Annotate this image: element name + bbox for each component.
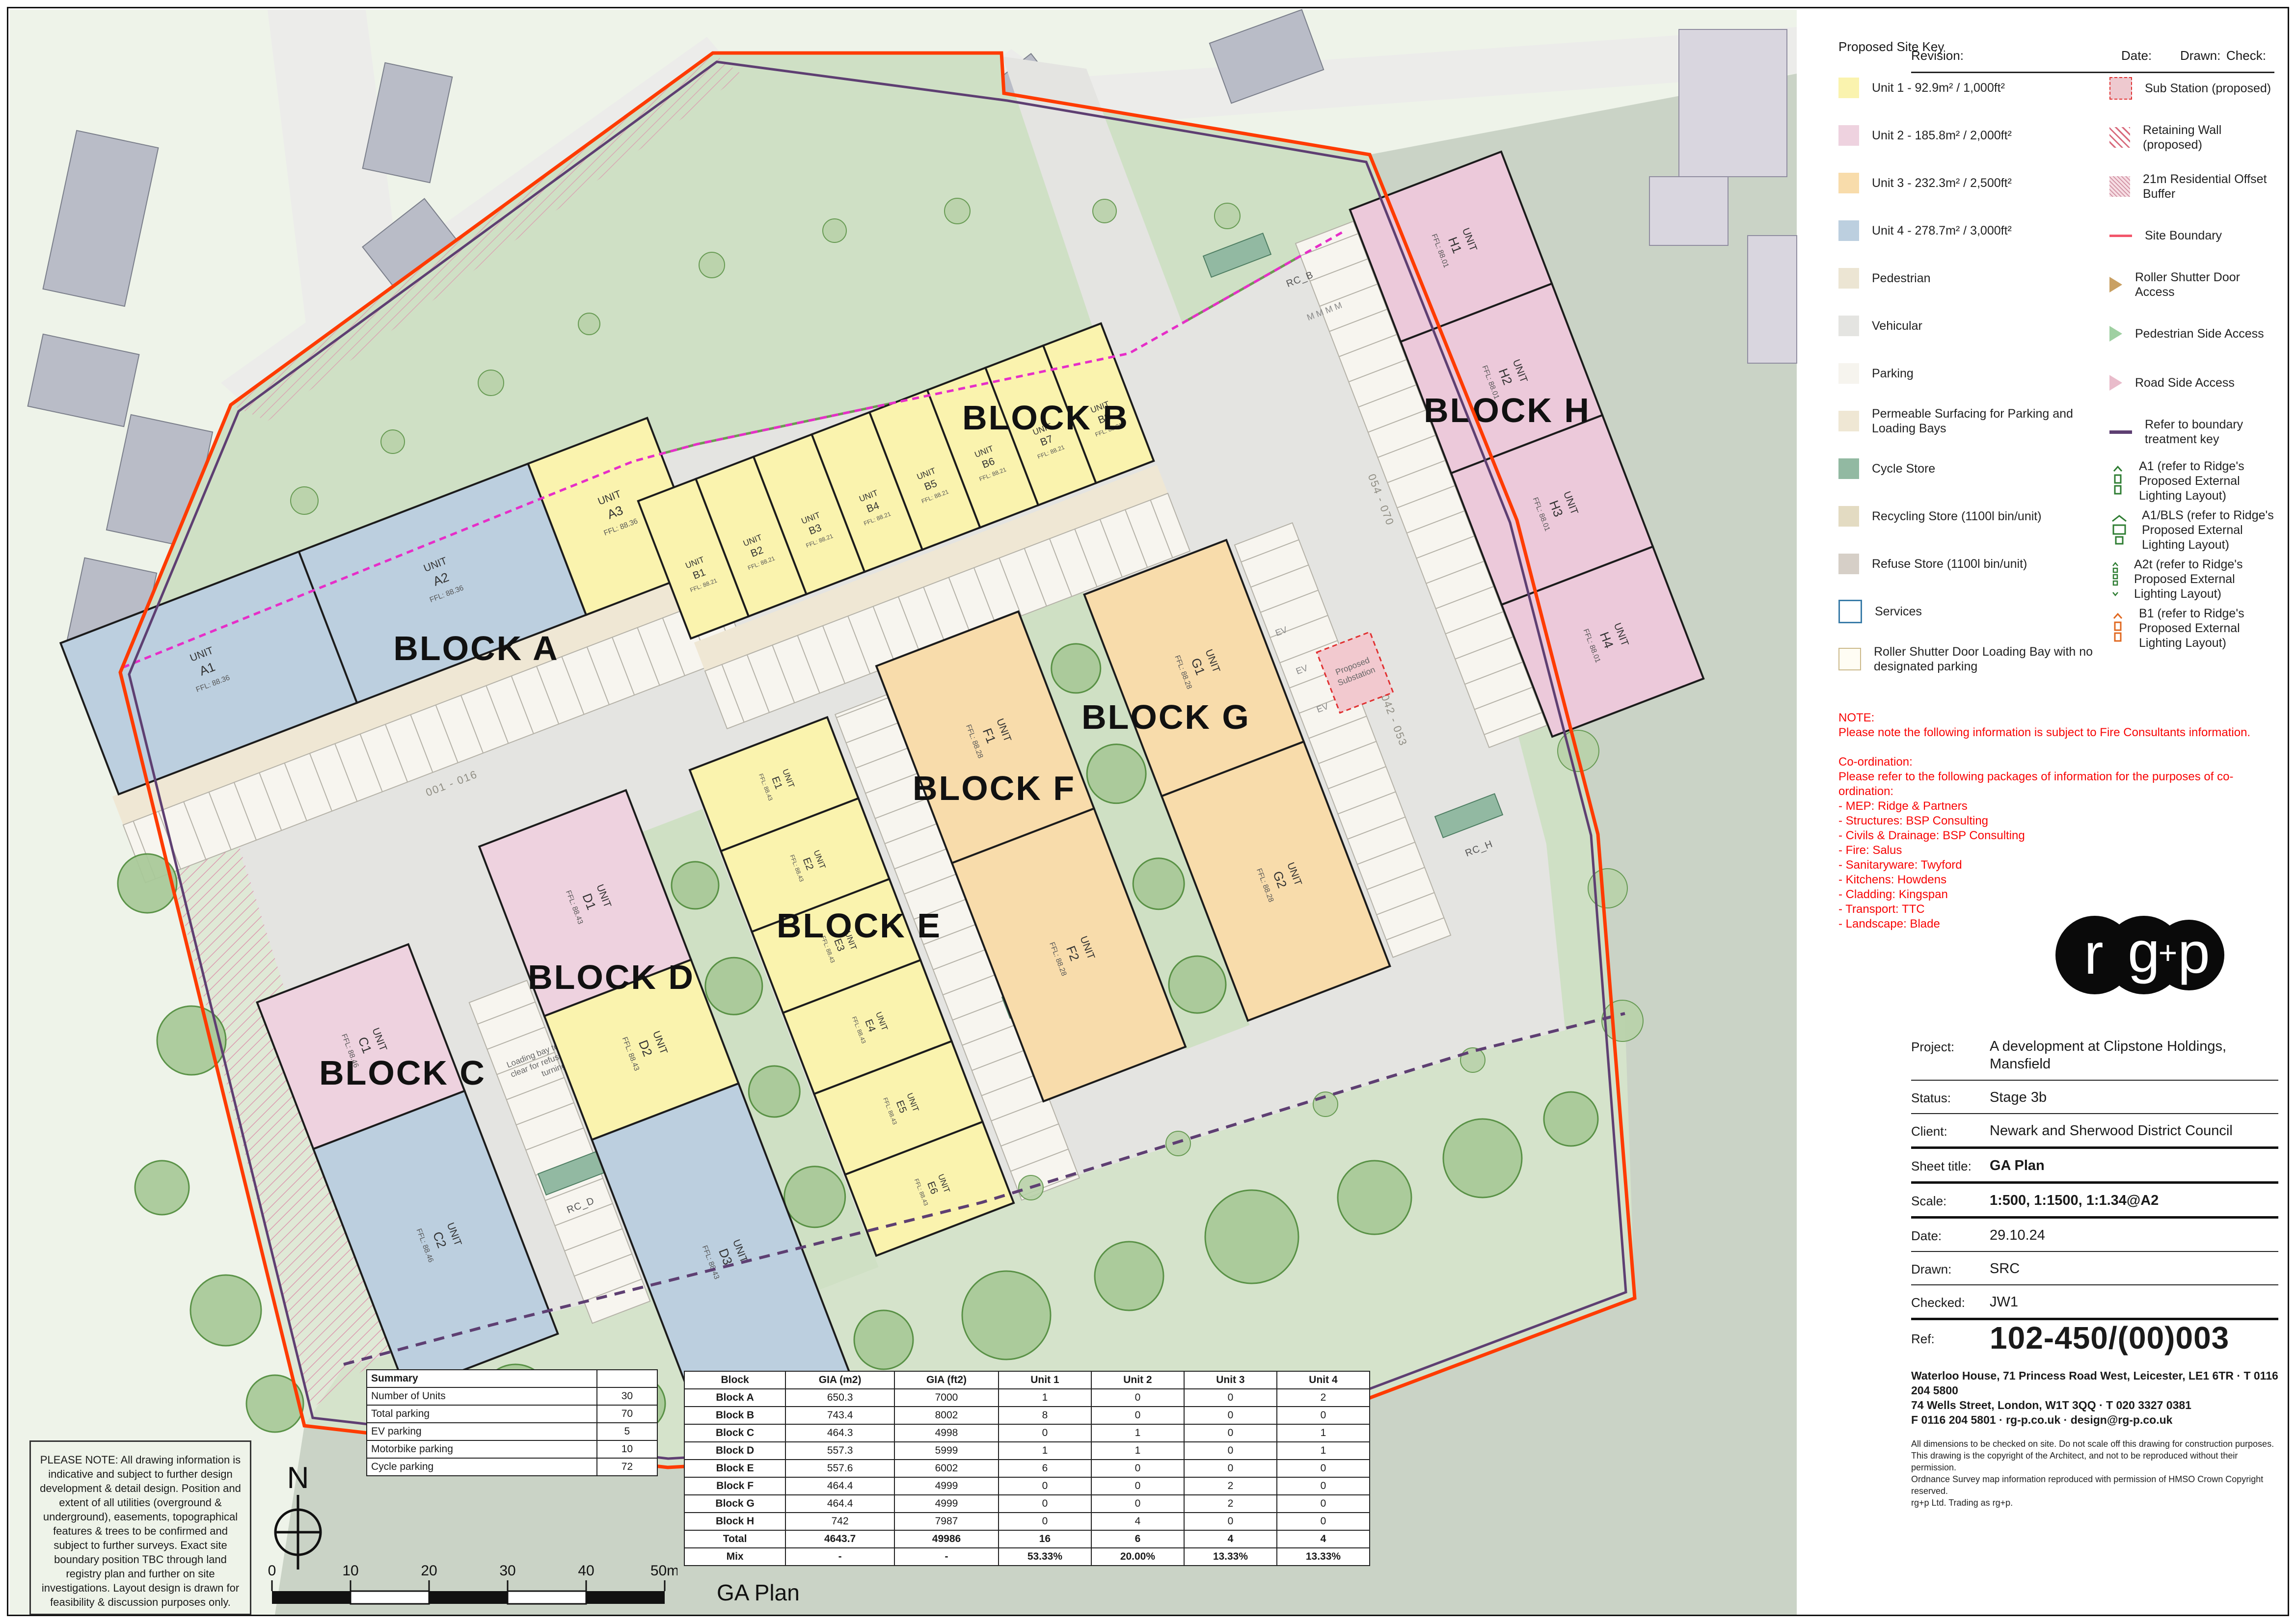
note-line: - Sanitaryware: Twyford (1838, 858, 2275, 873)
titleblock-label: Drawn: (1911, 1260, 1990, 1277)
legend-item: Cycle Store (1838, 445, 2104, 492)
legend-item-label: Cycle Store (1872, 461, 1935, 476)
legend-item-label: Retaining Wall (proposed) (2143, 123, 2280, 152)
legend-item-label: Permeable Surfacing for Parking and Load… (1872, 406, 2104, 436)
legend-item-label: Services (1875, 604, 1922, 619)
block-c-label: BLOCK C (319, 1054, 486, 1092)
legend-item-label: Unit 3 - 232.3m² / 2,500ft² (1872, 176, 2012, 190)
note-line: NOTE: (1838, 711, 2275, 725)
address-line: 74 Wells Street, London, W1T 3QQ · T 020… (1911, 1398, 2278, 1412)
block-b-label: BLOCK B (962, 399, 1129, 437)
titleblock-label: Checked: (1911, 1293, 1990, 1310)
road-access-arrow-icon (2109, 375, 2122, 391)
block-schedule-table: BlockGIA (m2)GIA (ft2)Unit 1Unit 2Unit 3… (684, 1371, 1370, 1566)
legend-item: Permeable Surfacing for Parking and Load… (1838, 397, 2104, 445)
legend-item: Unit 3 - 232.3m² / 2,500ft² (1838, 159, 2104, 207)
legend-item: A2t (refer to Ridge's Proposed External … (2109, 555, 2280, 604)
table-row: Block C464.349980101 (684, 1424, 1370, 1442)
table-row: Block A650.370001002 (684, 1389, 1370, 1407)
legend-item: Pedestrian (1838, 254, 2104, 302)
block-e-label: BLOCK E (777, 906, 942, 945)
legend-item: A1 (refer to Ridge's Proposed External L… (2109, 456, 2280, 506)
legend-swatch (1838, 458, 1859, 479)
legend-item: Roller Shutter Door Access (2109, 260, 2280, 309)
legend-item: Pedestrian Side Access (2109, 309, 2280, 358)
note-line: - Fire: Salus (1838, 843, 2275, 858)
table-row: Number of Units30 (367, 1387, 657, 1405)
titleblock-value: A development at Clipstone Holdings, Man… (1990, 1038, 2278, 1073)
please-note-box: PLEASE NOTE: All drawing information is … (29, 1440, 251, 1615)
note-line: - Civils & Drainage: BSP Consulting (1838, 828, 2275, 843)
legend-swatch (1838, 316, 1859, 336)
legend-item: Unit 1 - 92.9m² / 1,000ft² (1838, 64, 2104, 111)
titleblock-label: Client: (1911, 1122, 1990, 1139)
legend-right-column: Sub Station (proposed)Retaining Wall (pr… (2109, 64, 2280, 653)
titleblock-label: Project: (1911, 1038, 1990, 1055)
table-row: Summary (367, 1370, 657, 1387)
legend-item-label: Refer to boundary treatment key (2145, 417, 2280, 447)
legend-title: Proposed Site Key (1838, 39, 1944, 54)
rgp-logo: r g + p (2054, 912, 2226, 1000)
legend-item: 21m Residential Offset Buffer (2109, 162, 2280, 211)
legend-item: Road Side Access (2109, 358, 2280, 407)
svg-text:30: 30 (499, 1563, 515, 1579)
services-swatch (1838, 600, 1862, 623)
titleblock-value: Newark and Sherwood District Council (1990, 1122, 2233, 1140)
block-a-label: BLOCK A (393, 629, 559, 667)
legend-item: B1 (refer to Ridge's Proposed External L… (2109, 604, 2280, 653)
note-line: - Kitchens: Howdens (1838, 873, 2275, 887)
legend-item-label: B1 (refer to Ridge's Proposed External L… (2139, 606, 2280, 650)
titleblock-value: JW1 (1990, 1293, 2018, 1311)
legend-swatch (1838, 363, 1859, 384)
summary-table: SummaryNumber of Units30Total parking70E… (366, 1369, 658, 1476)
legend-swatch (1838, 411, 1859, 431)
legend-item-label: Recycling Store (1100l bin/unit) (1872, 509, 2042, 524)
disclaimer-line: Ordnance Survey map information reproduc… (1911, 1473, 2278, 1497)
titleblock-row: Sheet title: GA Plan (1911, 1149, 2278, 1184)
legend-item: Unit 2 - 185.8m² / 2,000ft² (1838, 111, 2104, 159)
legend-item: Sub Station (proposed) (2109, 64, 2280, 113)
note-line: - Structures: BSP Consulting (1838, 814, 2275, 828)
legend-item-label: Pedestrian (1872, 271, 1931, 286)
block-g-label: BLOCK G (1081, 698, 1250, 736)
scale-bar: 0 10 20 30 40 50m (265, 1561, 677, 1612)
titleblock-label: Sheet title: (1911, 1157, 1990, 1174)
drawing-sheet: Bus 001 - 016 017 - 025 (0, 0, 2296, 1623)
roller-bay-swatch (1838, 648, 1861, 670)
legend-swatch (1838, 78, 1859, 98)
titleblock-row: Scale: 1:500, 1:1500, 1:1.34@A2 (1911, 1184, 2278, 1219)
titleblock-label: Status: (1911, 1089, 1990, 1106)
legend-item-label: Vehicular (1872, 319, 1922, 333)
legend-item-label: Unit 4 - 278.7m² / 3,000ft² (1872, 223, 2012, 238)
titleblock-row: Drawn: SRC (1911, 1252, 2278, 1285)
disclaimer-line: rg+p Ltd. Trading as rg+p. (1911, 1497, 2278, 1509)
svg-text:p: p (2178, 921, 2210, 985)
fire-coordination-note: NOTE:Please note the following informati… (1838, 711, 2275, 931)
table-row: Block B743.480028000 (684, 1407, 1370, 1424)
table-row: Block D557.359991101 (684, 1442, 1370, 1460)
titleblock-value: 102-450/(00)003 (1990, 1329, 2229, 1347)
date-label: Date: (2121, 48, 2152, 63)
note-line: Please note the following information is… (1838, 725, 2275, 740)
table-row: EV parking5 (367, 1423, 657, 1440)
legend-item-label: 21m Residential Offset Buffer (2143, 172, 2280, 201)
titleblock-label: Scale: (1911, 1192, 1990, 1209)
table-row: Block G464.449990020 (684, 1495, 1370, 1513)
legend-item: Services (1838, 587, 2104, 635)
note-line: - Cladding: Kingspan (1838, 887, 2275, 902)
titleblock-value: GA Plan (1990, 1157, 2045, 1174)
legend-item: Site Boundary (2109, 211, 2280, 260)
legend-item-label: Unit 1 - 92.9m² / 1,000ft² (1872, 80, 2005, 95)
disclaimer-line: This drawing is the copyright of the Arc… (1911, 1450, 2278, 1473)
svg-text:0: 0 (268, 1563, 276, 1579)
table-row: Block E557.660026000 (684, 1460, 1370, 1477)
block-f-label: BLOCK F (913, 769, 1076, 807)
note-line: Co-ordination: (1838, 755, 2275, 770)
titleblock-row: Ref: 102-450/(00)003 (1911, 1320, 2278, 1356)
titleblock-row: Status: Stage 3b (1911, 1081, 2278, 1114)
svg-text:50m: 50m (650, 1563, 677, 1579)
legend-item: Roller Shutter Door Loading Bay with no … (1838, 635, 2104, 683)
titleblock-value: Stage 3b (1990, 1089, 2047, 1106)
legend-swatch (1838, 268, 1859, 289)
svg-text:10: 10 (342, 1563, 358, 1579)
roller-door-arrow-icon (2109, 277, 2122, 293)
svg-text:g: g (2128, 920, 2160, 984)
legend-item-label: A2t (refer to Ridge's Proposed External … (2134, 557, 2280, 601)
substation-swatch (2109, 77, 2132, 100)
legend-item-label: Pedestrian Side Access (2135, 326, 2264, 341)
legend-item: Vehicular (1838, 302, 2104, 349)
legend-item: Recycling Store (1100l bin/unit) (1838, 492, 2104, 540)
table-row: Total4643.74998616644 (684, 1530, 1370, 1548)
legend-item: Refer to boundary treatment key (2109, 407, 2280, 456)
svg-text:r: r (2084, 922, 2103, 986)
titleblock-value: 29.10.24 (1990, 1226, 2045, 1244)
svg-text:40: 40 (578, 1563, 594, 1579)
boundary-treatment-icon (2109, 430, 2132, 434)
legend-item-label: A1 (refer to Ridge's Proposed External L… (2139, 459, 2280, 503)
legend-item-label: Unit 2 - 185.8m² / 2,000ft² (1872, 128, 2012, 143)
titleblock-label: Ref: (1911, 1330, 1990, 1347)
svg-text:N: N (287, 1463, 309, 1495)
ga-plan-label: GA Plan (717, 1579, 800, 1606)
block-d-label: BLOCK D (528, 958, 695, 996)
disclaimer-line: All dimensions to be checked on site. Do… (1911, 1438, 2278, 1450)
legend-swatch (1838, 173, 1859, 193)
note-line (1838, 740, 2275, 755)
titleblock-label: Date: (1911, 1226, 1990, 1244)
legend-item-label: Sub Station (proposed) (2145, 81, 2271, 96)
legend-swatch (1838, 220, 1859, 241)
titleblock-row: Client: Newark and Sherwood District Cou… (1911, 1114, 2278, 1149)
legend-item: Unit 4 - 278.7m² / 3,000ft² (1838, 207, 2104, 254)
practice-address: Waterloo House, 71 Princess Road West, L… (1911, 1368, 2278, 1427)
legend-item-label: Site Boundary (2145, 228, 2222, 243)
block-h-label: BLOCK H (1424, 391, 1591, 429)
svg-text:+: + (2159, 934, 2178, 971)
titleblock-row: Project: A development at Clipstone Hold… (1911, 1030, 2278, 1081)
table-row: Mix--53.33%20.00%13.33%13.33% (684, 1548, 1370, 1566)
legend-item: Parking (1838, 349, 2104, 397)
legend-swatch (1838, 506, 1859, 527)
title-block: Project: A development at Clipstone Hold… (1911, 1030, 2278, 1509)
table-row: Cycle parking72 (367, 1458, 657, 1476)
buffer-swatch (2109, 176, 2130, 197)
titleblock-value: SRC (1990, 1260, 2020, 1277)
site-boundary-icon (2109, 235, 2132, 237)
title-panel: Revision: Date: Drawn: Check: Proposed S… (1838, 0, 2280, 1623)
pedestrian-access-arrow-icon (2109, 326, 2122, 342)
legend-item-label: Road Side Access (2135, 375, 2235, 390)
table-row: Block H74279870400 (684, 1513, 1370, 1530)
table-row: Motorbike parking10 (367, 1440, 657, 1458)
table-row: BlockGIA (m2)GIA (ft2)Unit 1Unit 2Unit 3… (684, 1371, 1370, 1389)
address-line: F 0116 204 5801 · rg-p.co.uk · design@rg… (1911, 1412, 2278, 1427)
titleblock-row: Checked: JW1 (1911, 1285, 2278, 1320)
titleblock-value: 1:500, 1:1500, 1:1.34@A2 (1990, 1192, 2159, 1209)
legend-item: Refuse Store (1100l bin/unit) (1838, 540, 2104, 587)
legend-item-label: Refuse Store (1100l bin/unit) (1872, 557, 2027, 571)
legend-item-label: Roller Shutter Door Loading Bay with no … (1874, 644, 2104, 674)
legend-left-column: Unit 1 - 92.9m² / 1,000ft²Unit 2 - 185.8… (1838, 64, 2104, 683)
legend-swatch (1838, 125, 1859, 146)
retaining-wall-swatch (2109, 127, 2130, 148)
note-line: Please refer to the following packages o… (1838, 770, 2275, 799)
legend-swatch (1838, 554, 1859, 574)
legend-item-label: Parking (1872, 366, 1914, 381)
note-line: - MEP: Ridge & Partners (1838, 799, 2275, 814)
disclaimer: All dimensions to be checked on site. Do… (1911, 1438, 2278, 1509)
check-label: Check: (2226, 48, 2266, 63)
address-line: Waterloo House, 71 Princess Road West, L… (1911, 1368, 2278, 1398)
table-row: Block F464.449990020 (684, 1477, 1370, 1495)
drawn-label: Drawn: (2180, 48, 2220, 63)
svg-text:20: 20 (421, 1563, 437, 1579)
table-row: Total parking70 (367, 1405, 657, 1423)
legend-item: Retaining Wall (proposed) (2109, 113, 2280, 162)
legend-item-label: Roller Shutter Door Access (2135, 270, 2280, 299)
legend-item: A1/BLS (refer to Ridge's Proposed Extern… (2109, 506, 2280, 555)
legend-item-label: A1/BLS (refer to Ridge's Proposed Extern… (2142, 508, 2280, 552)
titleblock-row: Date: 29.10.24 (1911, 1219, 2278, 1252)
